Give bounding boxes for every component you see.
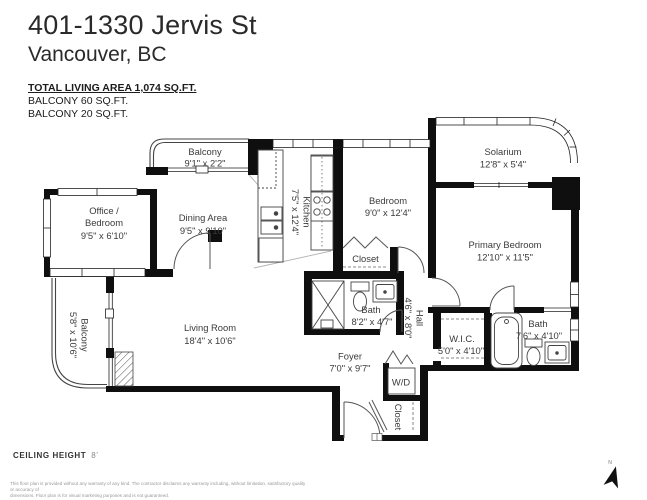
room-label-foyer: Foyer [338, 351, 362, 362]
balcony-area-1: BALCONY 60 SQ.FT. [28, 95, 196, 108]
primary-bedroom-door [432, 278, 460, 306]
wall [150, 189, 157, 270]
wall [332, 435, 344, 441]
wall [433, 313, 441, 349]
disclaimer: This floor plan is provided without any … [10, 481, 310, 500]
ceiling-height: CEILING HEIGHT8' [13, 451, 98, 460]
room-label-hall: Hall [415, 310, 426, 326]
address-line1: 401-1330 Jervis St [28, 10, 257, 41]
room-dims-foyer: 7'0" x 9'7" [330, 363, 371, 374]
wall-joint [333, 140, 343, 148]
room-label-balcony-left: Balcony [80, 318, 91, 352]
room-dims-balcony-top: 9'1" x 2'2" [185, 158, 226, 169]
room-dims-wic: 5'0" x 4'10" [438, 345, 484, 356]
room-dims-balcony-left: 5'8" x 10'6" [68, 312, 79, 358]
wall [528, 182, 554, 188]
balcony-area-2: BALCONY 20 SQ.FT. [28, 108, 196, 121]
area-summary: TOTAL LIVING AREA 1,074 SQ.FT. BALCONY 6… [28, 82, 196, 120]
wall [428, 118, 436, 190]
room-dims-main-bath: 8'2" x 4'7" [352, 316, 393, 327]
room-dims-bedroom: 9'0" x 12'4" [365, 207, 411, 218]
bathroom-sink [545, 342, 569, 363]
room-label-kitchen: Kitchen [302, 196, 313, 227]
toilet [525, 339, 542, 366]
bifold-door-wd-closet [385, 351, 413, 364]
room-label-office-2: Bedroom [85, 217, 123, 228]
room-dims-dining: 9'5" x 9'10" [180, 225, 226, 236]
slider-marker [106, 309, 114, 318]
dishwasher [259, 238, 283, 262]
office-door [174, 233, 210, 269]
room-dims-hall: 4'6" x 8'0" [403, 298, 414, 339]
wall [304, 329, 380, 335]
wall [428, 307, 490, 313]
room-label-wd: W/D [392, 377, 410, 388]
room-label-dining: Dining Area [179, 212, 228, 223]
kitchen-sink [261, 221, 282, 234]
room-label-bedroom-closet: Closet [352, 253, 379, 264]
header: 401-1330 Jervis St Vancouver, BC [28, 10, 257, 67]
wall [396, 329, 404, 335]
north-arrow-icon: N [604, 460, 624, 489]
hatched-structure [115, 352, 133, 386]
wall [304, 271, 404, 279]
bathroom-sink [373, 281, 397, 302]
wall [332, 388, 340, 441]
wall [571, 307, 579, 319]
room-label-living-room: Living Room [184, 322, 236, 333]
room-label-entry-closet: Closet [393, 404, 404, 431]
window [58, 189, 137, 196]
wall [333, 139, 343, 275]
ceiling-height-value: 8' [91, 451, 98, 460]
wall [420, 371, 428, 441]
curved-window-inner [530, 125, 571, 163]
room-dims-living-room: 18'4" x 10'6" [184, 335, 235, 346]
room-label-main-bath: Bath [361, 304, 380, 315]
wall [106, 386, 340, 392]
room-label-wic: W.I.C. [449, 333, 475, 344]
wall [383, 395, 420, 401]
room-label-balcony-top: Balcony [188, 146, 222, 157]
wall [428, 182, 474, 188]
disclaimer-line2: dimensions. Floor plan is for visual mar… [10, 493, 310, 499]
wall [514, 307, 544, 313]
ensuite-door [490, 286, 514, 310]
wall [428, 188, 436, 278]
floorplan-page: 401-1330 Jervis St Vancouver, BC TOTAL L… [0, 0, 647, 500]
room-label-primary-bedroom: Primary Bedroom [469, 239, 542, 250]
shower [312, 281, 344, 329]
room-label-solarium: Solarium [485, 146, 522, 157]
wall [146, 167, 168, 175]
wall [571, 195, 579, 282]
wall [390, 247, 398, 279]
room-dims-solarium: 12'8" x 5'4" [480, 159, 526, 170]
ceiling-height-label: CEILING HEIGHT [13, 451, 86, 460]
bedroom-door [398, 247, 424, 273]
address-line2: Vancouver, BC [28, 43, 257, 67]
room-dims-office: 9'5" x 6'10" [81, 230, 127, 241]
room-label-bedroom: Bedroom [369, 195, 407, 206]
window [50, 269, 145, 277]
total-living-area: TOTAL LIVING AREA 1,074 SQ.FT. [28, 82, 196, 95]
window [436, 118, 530, 126]
room-dims-primary-bedroom: 12'10" x 11'5" [477, 252, 533, 263]
room-dims-ensuite-bath: 7'6" x 4'10" [516, 330, 562, 341]
room-label-office-1: Office / [89, 205, 119, 216]
kitchen-sink [261, 207, 282, 220]
north-label: N [608, 460, 612, 466]
wall [304, 271, 312, 335]
floorplan-drawing: Balcony 9'1" x 2'2" Office / Bedroom 9'5… [0, 0, 647, 500]
bifold-door-bedroom-closet [343, 237, 388, 248]
room-dims-kitchen: 7'5" x 12'4" [290, 189, 301, 235]
wall [106, 348, 114, 358]
disclaimer-line1: This floor plan is provided without any … [10, 481, 310, 493]
window [273, 140, 430, 148]
room-label-ensuite-bath: Bath [528, 318, 547, 329]
